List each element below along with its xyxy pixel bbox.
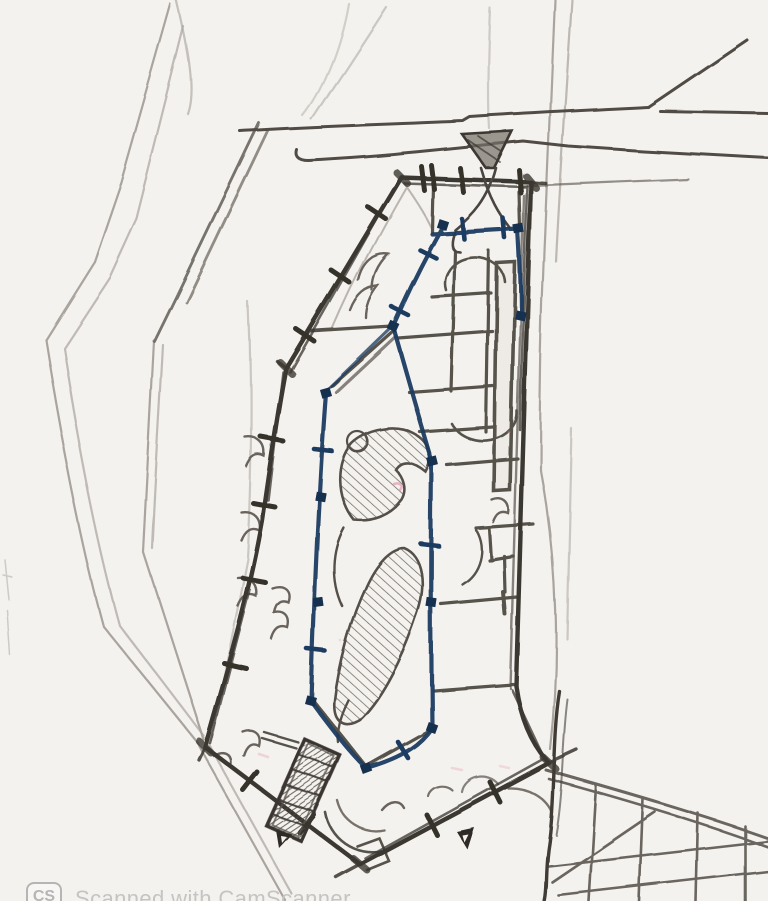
site-plan-sketch (0, 0, 768, 901)
cs-badge-icon: CS (26, 882, 62, 901)
camscanner-watermark: CS Scanned with CamScanner (26, 882, 351, 901)
scanned-sketch-page: CS Scanned with CamScanner (0, 0, 768, 901)
watermark-text: Scanned with CamScanner (75, 882, 351, 901)
